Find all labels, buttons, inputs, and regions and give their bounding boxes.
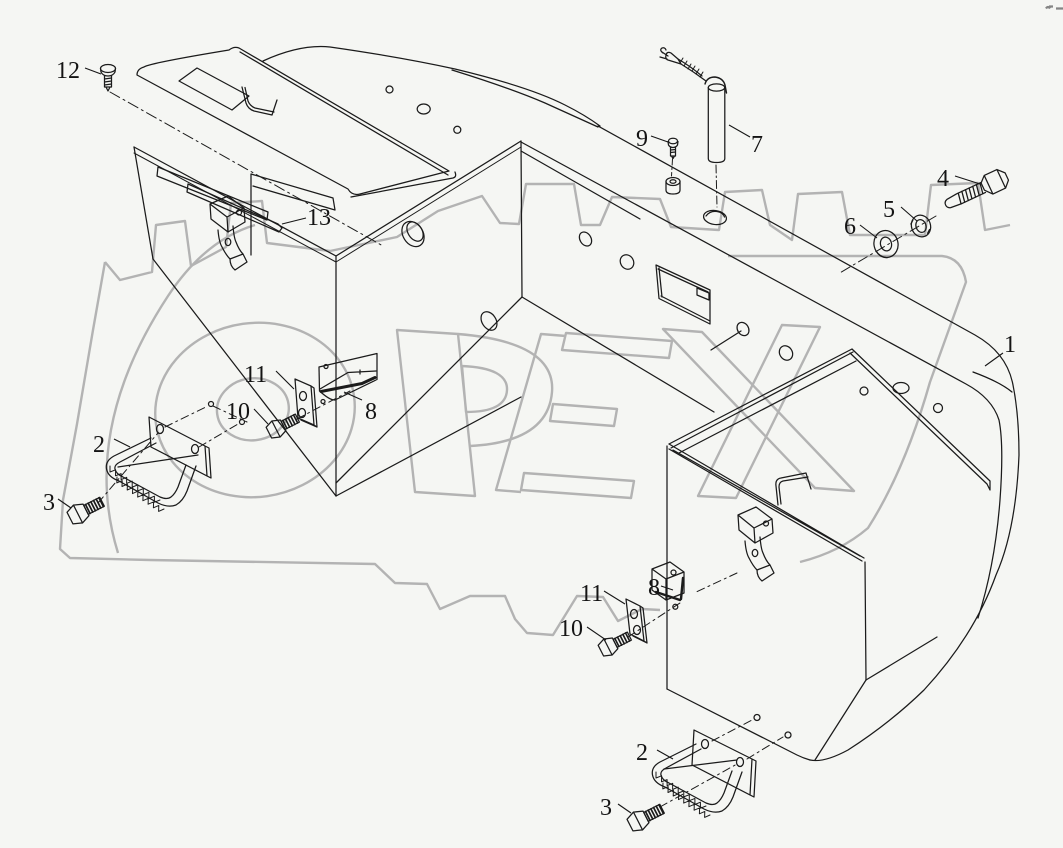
svg-text:13: 13	[307, 205, 331, 231]
svg-text:7: 7	[751, 132, 763, 158]
svg-text:10: 10	[559, 616, 583, 642]
svg-text:8: 8	[365, 399, 377, 425]
svg-text:1: 1	[1004, 332, 1016, 358]
svg-text:11: 11	[580, 581, 603, 607]
svg-text:4: 4	[937, 166, 949, 192]
svg-text:3: 3	[600, 795, 612, 821]
svg-text:8: 8	[648, 575, 660, 601]
svg-text:2: 2	[93, 432, 105, 458]
svg-text:3: 3	[43, 490, 55, 516]
svg-text:9: 9	[636, 126, 648, 152]
svg-text:10: 10	[226, 399, 250, 425]
svg-text:6: 6	[844, 214, 856, 240]
svg-text:12: 12	[56, 58, 80, 84]
svg-text:5: 5	[883, 197, 895, 223]
svg-text:2: 2	[636, 740, 648, 766]
svg-text:11: 11	[244, 362, 267, 388]
